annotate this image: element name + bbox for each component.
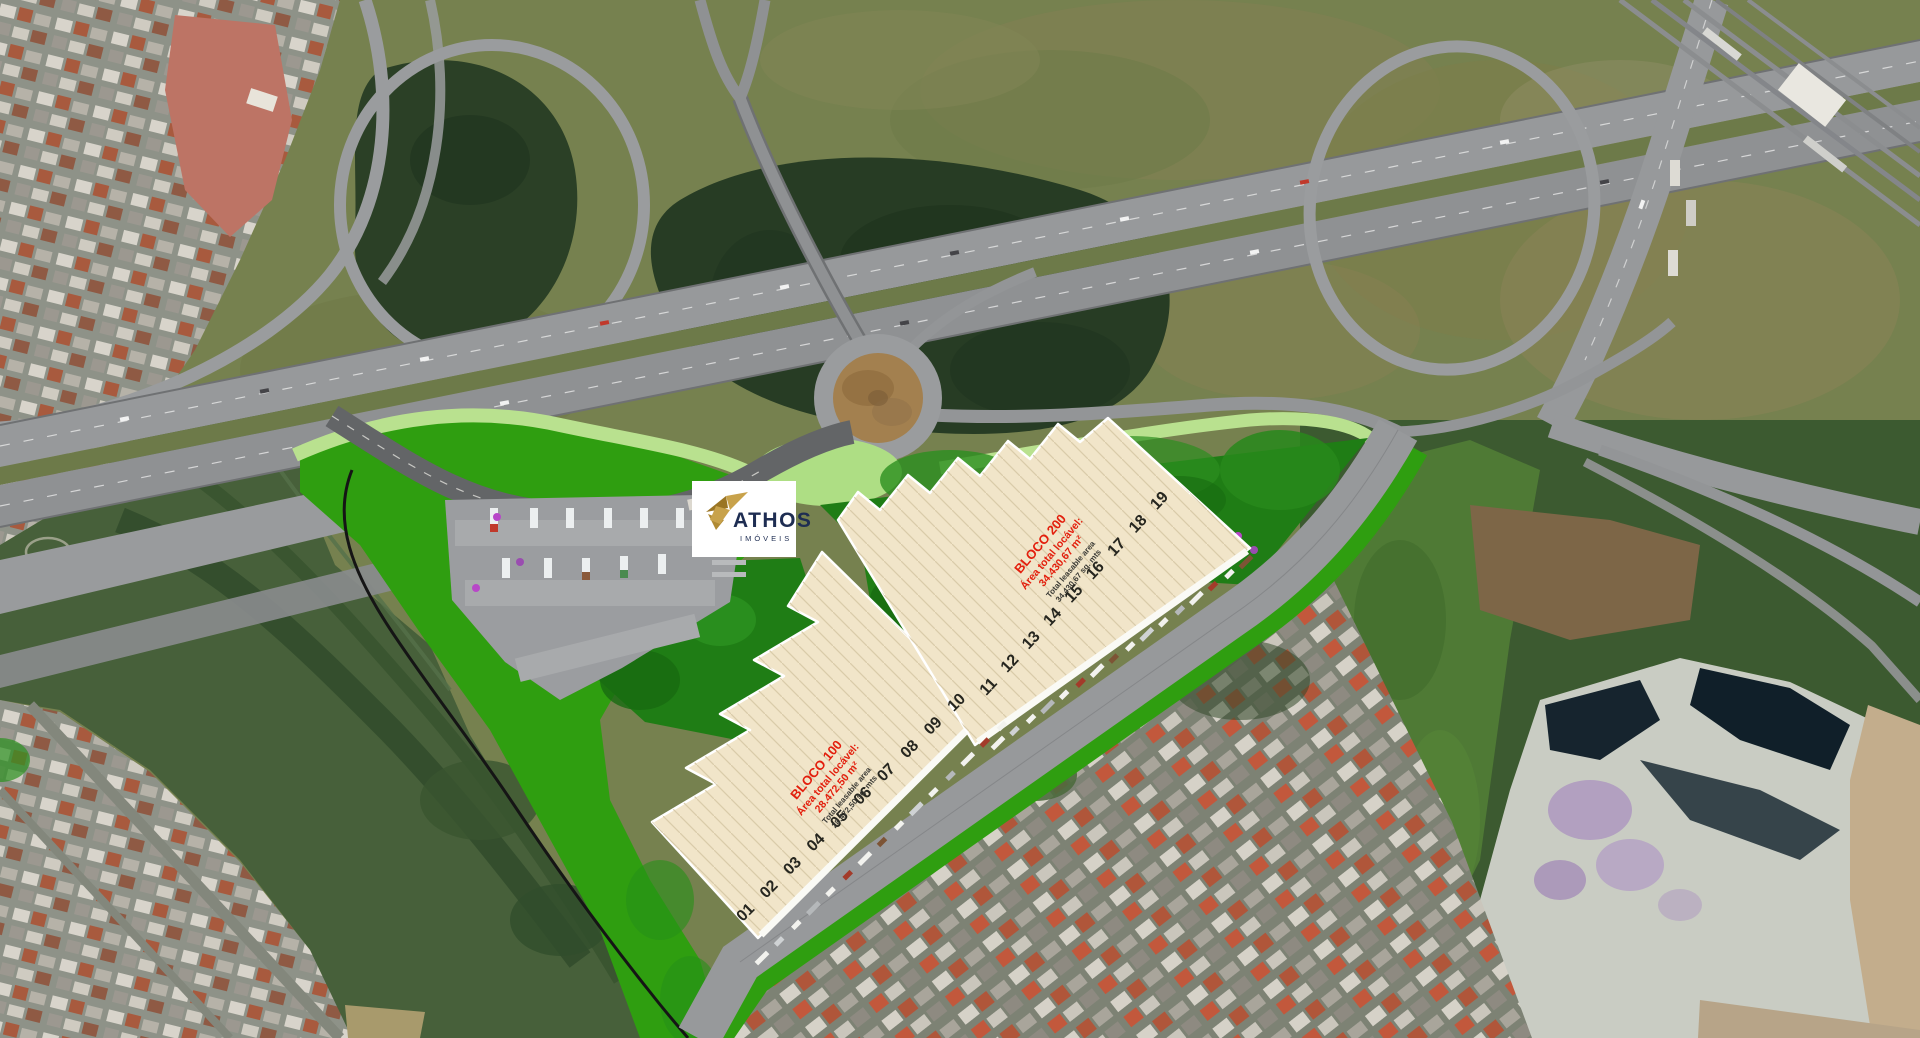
logo-subtitle: IMÓVEIS [740, 534, 792, 543]
logo-name: ATHOS [733, 509, 812, 532]
aerial-masterplan-screenshot: VIA DE ACESSO [0, 0, 1920, 1038]
logo-card: ATHOS IMÓVEIS [692, 481, 812, 557]
aerial-map: VIA DE ACESSO [0, 0, 1920, 1038]
